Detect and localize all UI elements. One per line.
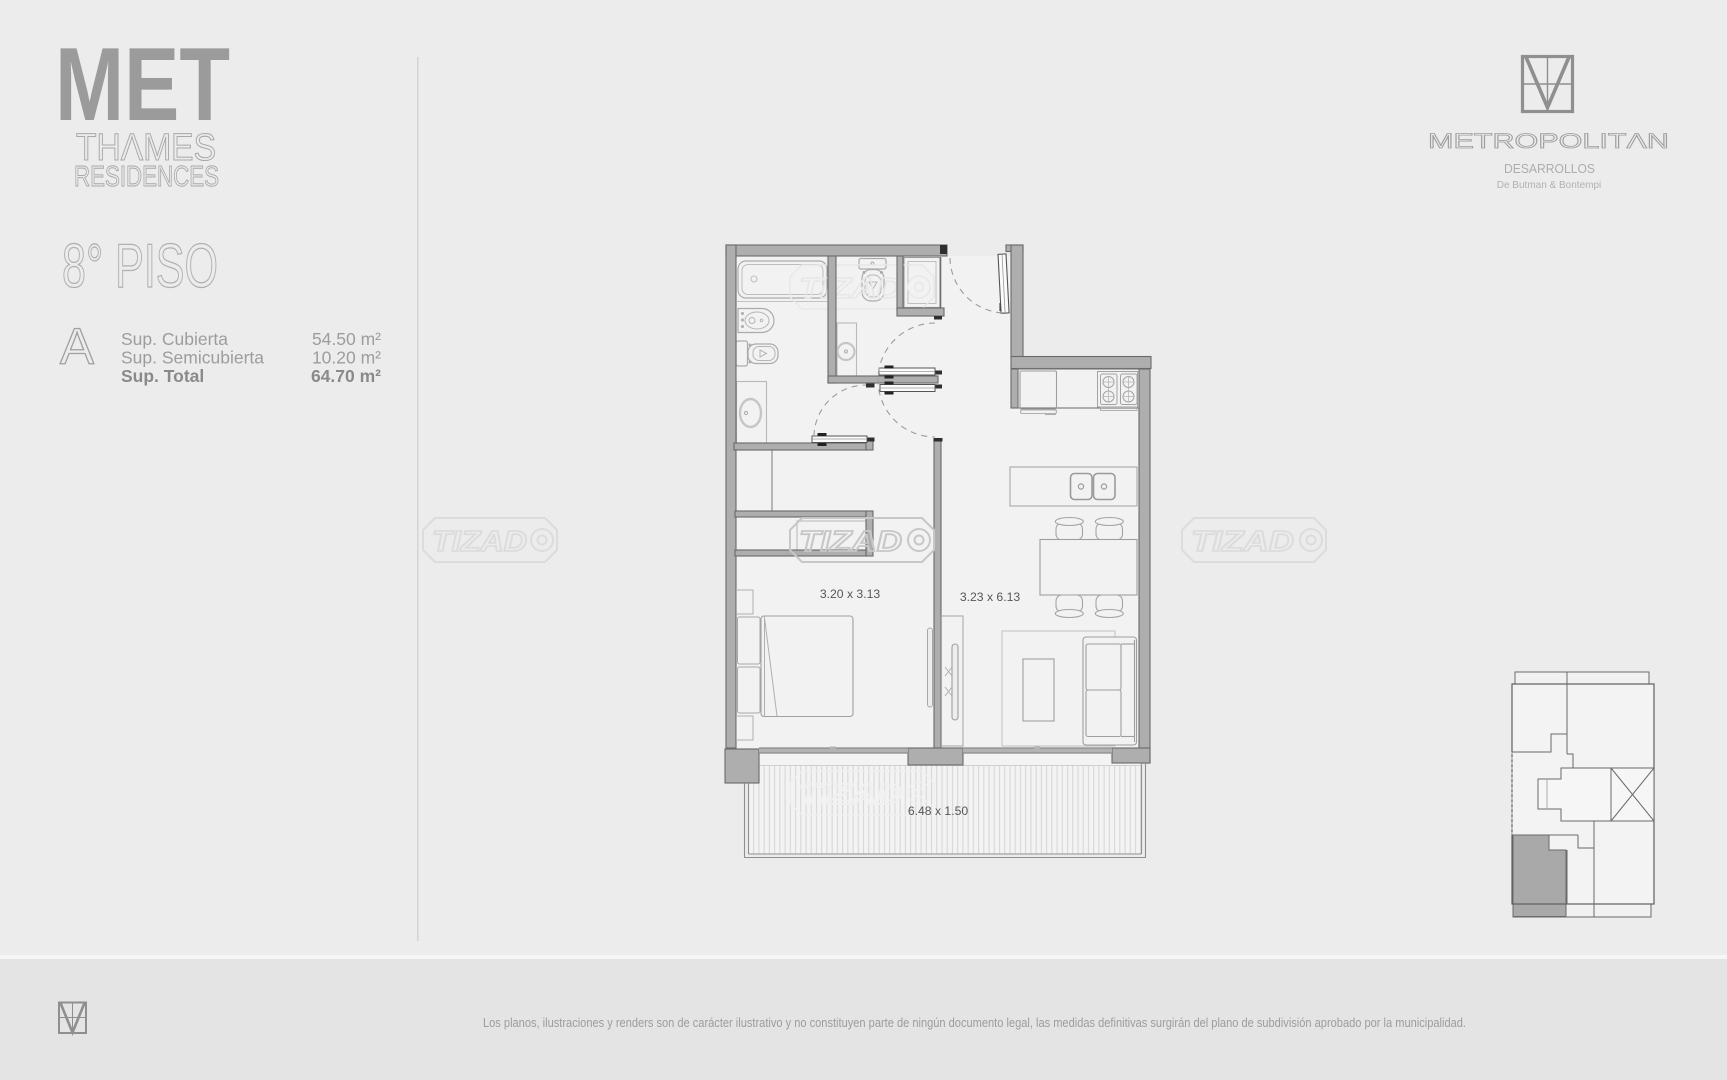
svg-text:Sup. Semicubierta: Sup. Semicubierta xyxy=(121,348,264,368)
svg-text:TIZAD: TIZAD xyxy=(432,526,527,558)
svg-text:METROPOLITΛN: METROPOLITΛN xyxy=(1428,129,1669,153)
svg-text:Los planos, ilustraciones y re: Los planos, ilustraciones y renders son … xyxy=(483,1016,1466,1030)
svg-text:Sup. Cubierta: Sup. Cubierta xyxy=(121,329,228,349)
svg-text:6.48 x 1.50: 6.48 x 1.50 xyxy=(908,804,969,818)
svg-text:TIZAD: TIZAD xyxy=(1191,526,1294,558)
svg-text:3.23 x 6.13: 3.23 x 6.13 xyxy=(960,590,1021,604)
svg-text:RESIDENCES: RESIDENCES xyxy=(74,161,219,193)
svg-text:3.20 x 3.13: 3.20 x 3.13 xyxy=(820,587,881,601)
svg-text:DESARROLLOS: DESARROLLOS xyxy=(1504,161,1595,176)
svg-text:A: A xyxy=(60,318,94,375)
svg-text:Sup. Total: Sup. Total xyxy=(121,366,204,386)
svg-text:De Butman & Bontempi: De Butman & Bontempi xyxy=(1497,180,1602,191)
svg-text:TIZAD: TIZAD xyxy=(799,526,902,558)
svg-text:10.20 m²: 10.20 m² xyxy=(312,348,381,368)
svg-text:8° PISO: 8° PISO xyxy=(62,232,218,301)
svg-text:TIZAD: TIZAD xyxy=(799,273,902,305)
svg-text:54.50 m²: 54.50 m² xyxy=(312,329,381,349)
svg-text:64.70 m²: 64.70 m² xyxy=(311,366,381,386)
svg-text:MET: MET xyxy=(55,27,230,143)
svg-text:TIZAD: TIZAD xyxy=(799,779,902,811)
